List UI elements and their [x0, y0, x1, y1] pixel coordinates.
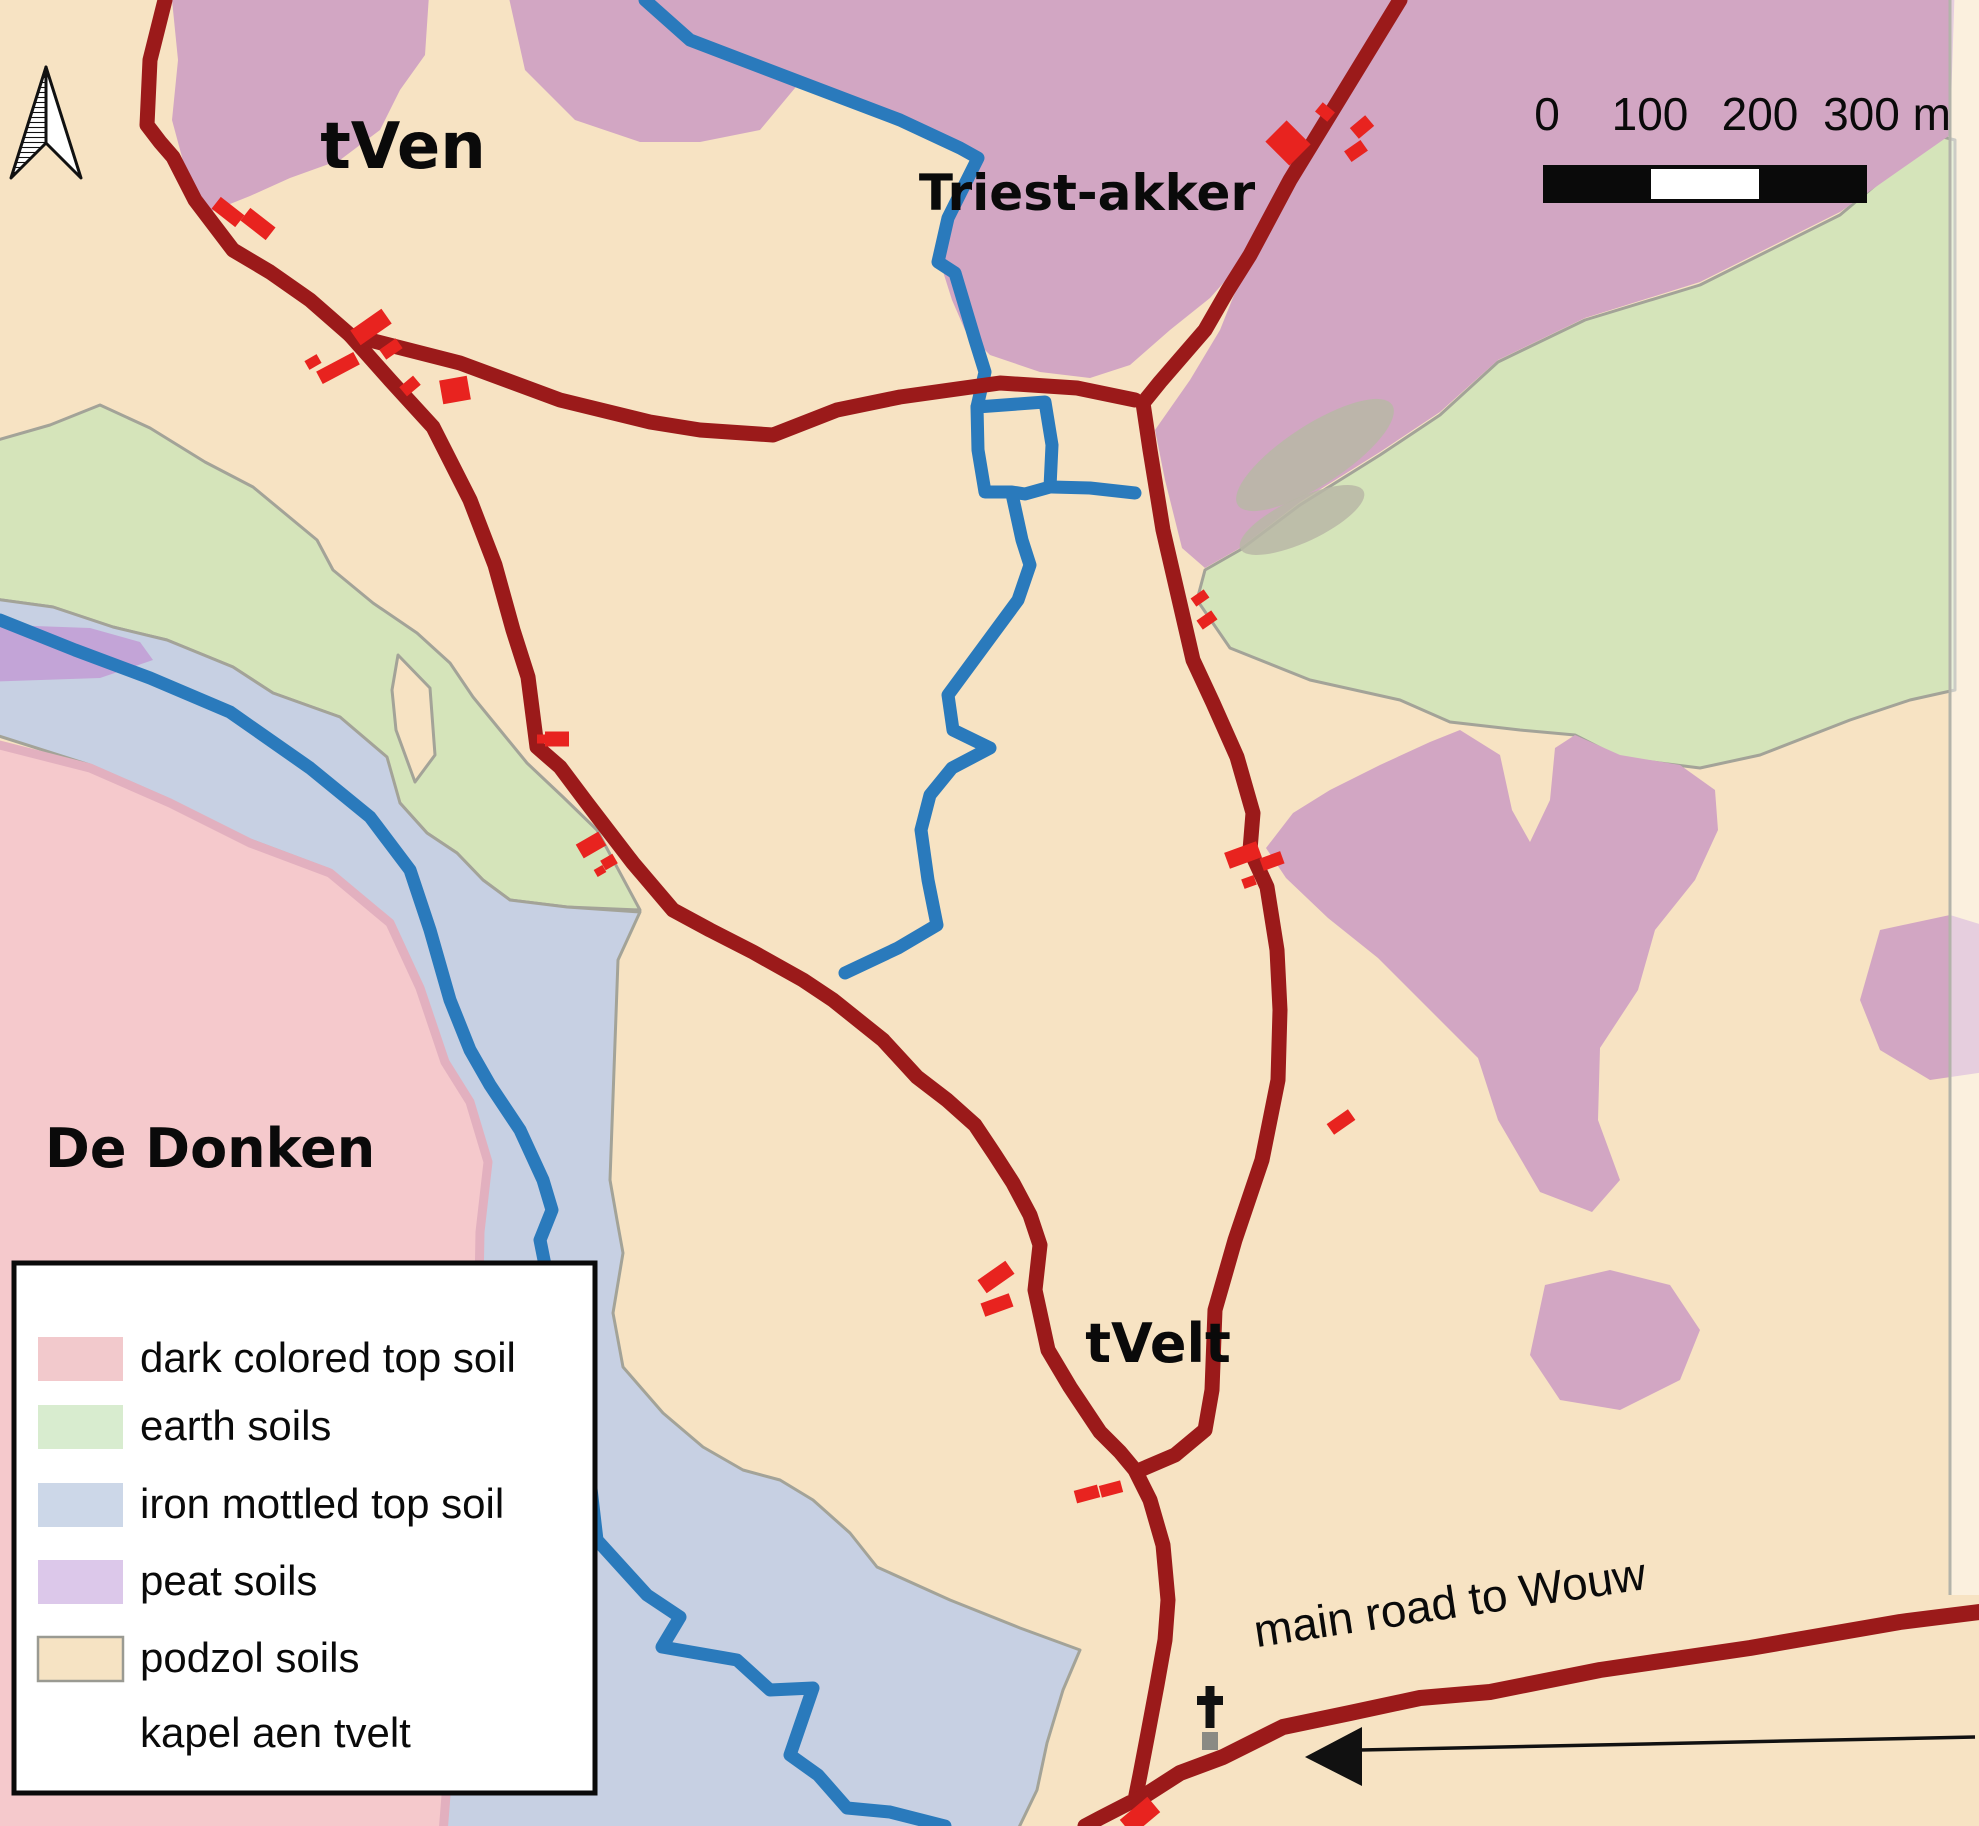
- legend-label: kapel aen tvelt: [140, 1709, 411, 1756]
- legend-item: dark colored top soil: [38, 1334, 516, 1381]
- scale-tick: 0: [1534, 88, 1560, 140]
- legend-item: earth soils: [38, 1402, 331, 1449]
- legend-swatch-earth-soils: [38, 1405, 123, 1449]
- legend-swatch-podzol-soils: [38, 1637, 123, 1681]
- label-de-donken: De Donken: [45, 1117, 375, 1180]
- legend-swatch-dark-topsoil: [38, 1337, 123, 1381]
- legend-swatch-peat-soils: [38, 1560, 123, 1604]
- label-tven: tVen: [320, 110, 486, 184]
- legend-label: podzol soils: [140, 1634, 359, 1681]
- unmapped-edge-strip: [1950, 0, 1979, 1595]
- soil-map: tVen Triest-akker De Donken tVelt main r…: [0, 0, 1979, 1826]
- legend-swatch-iron-mottled: [38, 1483, 123, 1527]
- kapel-icon-part: [1206, 1686, 1215, 1728]
- scale-tick: 200: [1722, 88, 1799, 140]
- label-tvelt: tVelt: [1085, 1312, 1231, 1375]
- scale-tick: 100: [1612, 88, 1689, 140]
- legend-label: dark colored top soil: [140, 1334, 516, 1381]
- map-edge: [1950, 0, 1979, 1595]
- legend-item: iron mottled top soil: [38, 1480, 504, 1527]
- legend-item: peat soils: [38, 1557, 317, 1604]
- map-canvas: tVen Triest-akker De Donken tVelt main r…: [0, 0, 1979, 1826]
- legend-label: iron mottled top soil: [140, 1480, 504, 1527]
- scale-tick: 300 m: [1823, 88, 1951, 140]
- building-mark: [537, 735, 549, 744]
- legend-item: podzol soils: [38, 1634, 359, 1681]
- legend-item: kapel aen tvelt: [140, 1709, 411, 1756]
- legend: dark colored top soil earth soils iron m…: [14, 1263, 595, 1793]
- legend-label: peat soils: [140, 1557, 317, 1604]
- label-triest-akker: Triest-akker: [919, 164, 1256, 222]
- stream: [1052, 487, 1135, 493]
- kapel-icon-part: [1197, 1696, 1223, 1705]
- scale-bar-white: [1651, 169, 1759, 199]
- kapel-icon-part: [1202, 1732, 1218, 1750]
- building-mark: [439, 376, 471, 404]
- legend-label: earth soils: [140, 1402, 331, 1449]
